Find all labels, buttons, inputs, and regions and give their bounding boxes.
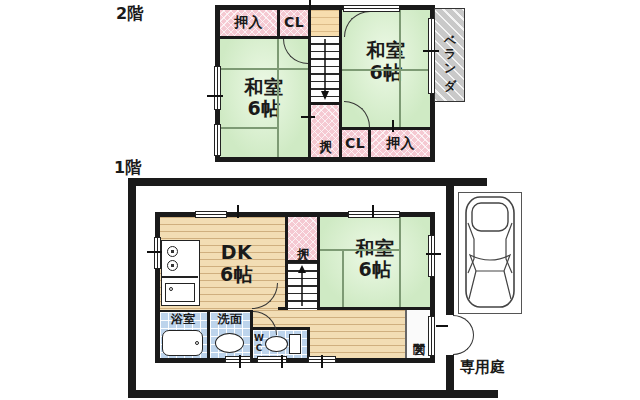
wall-tick (321, 355, 323, 368)
site-wall-right-lower (446, 355, 454, 398)
window (343, 5, 400, 12)
toilet-bowl (265, 336, 288, 352)
closet-label: 押入 (386, 136, 415, 152)
garden-label: 専用庭 (460, 358, 505, 377)
floor-plan: 2階 1階 押入 CL 和室 6帖 和室 6帖 (0, 0, 640, 400)
room-size: 6帖 (220, 264, 253, 285)
tatami-line (220, 68, 308, 70)
wall-tick (372, 205, 374, 218)
room-label: DK 6帖 (220, 242, 253, 285)
bathroom: 浴室 (160, 312, 207, 358)
tatami-line (399, 10, 401, 127)
drain (195, 341, 199, 345)
tatami-line (342, 249, 344, 307)
tatami-line (320, 249, 400, 251)
wall-tick (423, 50, 439, 52)
faucet (169, 287, 173, 291)
wall-tick (207, 95, 223, 97)
window (428, 18, 435, 94)
entrance: 玄関 (405, 310, 430, 358)
site-wall-bottom (128, 390, 498, 398)
closet-2f-cl-top: CL (280, 10, 308, 36)
stove-burner (167, 260, 178, 271)
tatami-line (399, 217, 401, 307)
entrance-door (428, 316, 435, 356)
second-floor-label: 2階 (116, 4, 143, 25)
veranda-label: ベランダ (443, 26, 456, 84)
site-wall-top (128, 178, 487, 186)
site-wall-left (128, 178, 136, 398)
veranda: ベランダ (434, 8, 465, 102)
car-icon (459, 193, 521, 313)
stairs-up-arrow (288, 263, 317, 310)
closet-label: 押入 (234, 15, 263, 31)
parking-space (458, 192, 522, 314)
closet-2f-mid: 押入 (311, 105, 339, 157)
cl-label: CL (345, 136, 365, 152)
cl-label: CL (284, 15, 304, 31)
gate-door-arc (453, 315, 474, 335)
kitchen-sink (165, 283, 195, 302)
window (428, 235, 435, 277)
stove-burner (167, 246, 178, 257)
wall-tick (281, 355, 283, 368)
wall-tick (309, 0, 311, 10)
tatami-line (277, 39, 279, 157)
washroom: 洗面 (210, 312, 250, 358)
wall-stub (278, 307, 288, 310)
bath-label: 浴室 (171, 313, 196, 326)
stair-landing-2f (311, 10, 339, 36)
closet-label: 押入 (318, 130, 331, 132)
room-name: DK (220, 242, 253, 263)
tatami-line (342, 69, 430, 71)
closet-2f-cl-bottom: CL (342, 130, 368, 157)
tatami-room-1f: 和室 6帖 (320, 217, 430, 307)
gate-door-arc (453, 335, 474, 355)
closet-label: 押入 (296, 238, 309, 240)
toilet-tank (289, 334, 301, 354)
second-floor-plan: 押入 CL 和室 6帖 和室 6帖 押入 (215, 5, 435, 162)
stairs-1f (288, 263, 317, 310)
wall-tick (147, 251, 162, 253)
wall-tick (239, 355, 241, 368)
wall-tick (237, 205, 239, 218)
tatami-line (220, 127, 277, 129)
site-wall-right-upper (446, 178, 454, 315)
first-floor-label: 1階 (114, 158, 141, 179)
first-floor-plan: DK 6帖 押入 和 (155, 212, 435, 363)
kitchen-unit (161, 240, 200, 306)
window (154, 237, 161, 269)
room-label: 和室 6帖 (356, 238, 395, 281)
closet-1f: 押入 (288, 217, 317, 260)
wc-label: WC (254, 333, 264, 353)
bathtub (162, 330, 203, 356)
window (225, 356, 251, 363)
wall-tick (301, 116, 315, 118)
closet-2f-top-left: 押入 (220, 10, 277, 36)
room-size: 6帖 (356, 259, 395, 280)
closet-2f-bottom-right: 押入 (371, 130, 430, 157)
washroom-label: 洗面 (218, 313, 243, 326)
wall-tick (426, 253, 441, 255)
counter-divider (162, 276, 198, 278)
window (214, 124, 221, 156)
wall-tick (392, 120, 394, 132)
stairs-down-arrow (311, 36, 339, 102)
window (348, 211, 400, 218)
wall-tick (436, 325, 448, 327)
stairs-2f (311, 36, 339, 102)
entrance-label: 玄関 (412, 333, 425, 335)
window (195, 211, 227, 218)
wash-basin (215, 333, 244, 353)
window (214, 66, 221, 110)
